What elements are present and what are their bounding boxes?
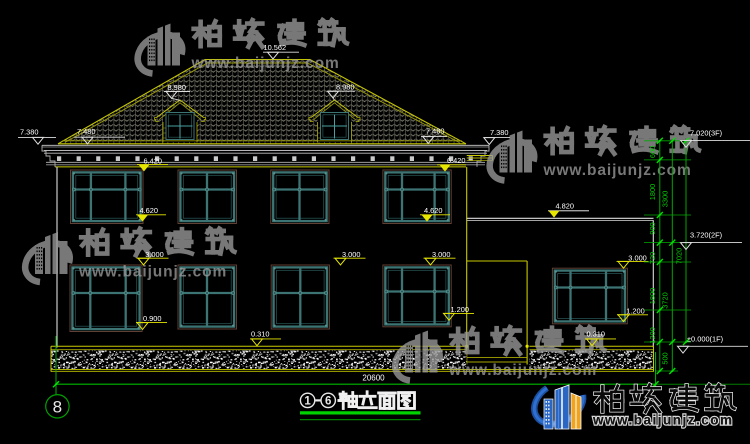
svg-text:8.980: 8.980 <box>336 83 355 92</box>
svg-text:6: 6 <box>325 396 331 408</box>
svg-text:3.000: 3.000 <box>342 250 361 259</box>
svg-text:20600: 20600 <box>362 374 385 383</box>
svg-text:7.380: 7.380 <box>490 128 509 137</box>
svg-text:1.200: 1.200 <box>626 306 645 315</box>
svg-text:3.000: 3.000 <box>432 250 451 259</box>
svg-text:3.000: 3.000 <box>145 250 164 259</box>
svg-text:7.480: 7.480 <box>77 127 96 136</box>
svg-text:3720: 3720 <box>661 292 670 308</box>
svg-text:1800: 1800 <box>648 288 657 304</box>
svg-text:8.980: 8.980 <box>168 83 187 92</box>
svg-text:6.420: 6.420 <box>144 156 163 165</box>
svg-text:6.420: 6.420 <box>447 156 466 165</box>
svg-text:1.200: 1.200 <box>451 305 470 314</box>
svg-text:900: 900 <box>648 222 657 234</box>
svg-text:1: 1 <box>304 396 311 408</box>
svg-text:3300: 3300 <box>661 191 670 207</box>
svg-text:0.310: 0.310 <box>587 330 606 339</box>
svg-text:0.310: 0.310 <box>251 330 270 339</box>
svg-text:www.baijunjz.com: www.baijunjz.com <box>78 264 227 281</box>
svg-text:3.000: 3.000 <box>628 253 647 262</box>
svg-text:720: 720 <box>648 252 657 264</box>
svg-text:www.baijunjz.com: www.baijunjz.com <box>543 162 692 179</box>
svg-text:10.562: 10.562 <box>264 43 287 52</box>
svg-text:www.baijunjz.com: www.baijunjz.com <box>592 413 734 428</box>
svg-text:www.baijunjz.com: www.baijunjz.com <box>448 362 597 379</box>
svg-text:±0.000(1F): ±0.000(1F) <box>687 334 723 343</box>
svg-text:4.620: 4.620 <box>424 206 443 215</box>
svg-text:7.380: 7.380 <box>20 127 39 136</box>
svg-text:1800: 1800 <box>648 184 657 200</box>
svg-text:0.900: 0.900 <box>143 314 162 323</box>
svg-text:7.480: 7.480 <box>426 127 445 136</box>
svg-text:4.820: 4.820 <box>556 202 575 211</box>
svg-text:500: 500 <box>661 352 670 364</box>
svg-text:8: 8 <box>53 398 62 417</box>
svg-text:4.620: 4.620 <box>140 206 159 215</box>
svg-text:3.720(2F): 3.720(2F) <box>690 231 722 240</box>
svg-text:1200: 1200 <box>648 327 657 343</box>
svg-text:600: 600 <box>648 146 657 158</box>
svg-text:7.020(3F): 7.020(3F) <box>690 128 722 137</box>
svg-text:www.baijunjz.com: www.baijunjz.com <box>191 55 340 72</box>
svg-text:7020: 7020 <box>674 248 683 264</box>
